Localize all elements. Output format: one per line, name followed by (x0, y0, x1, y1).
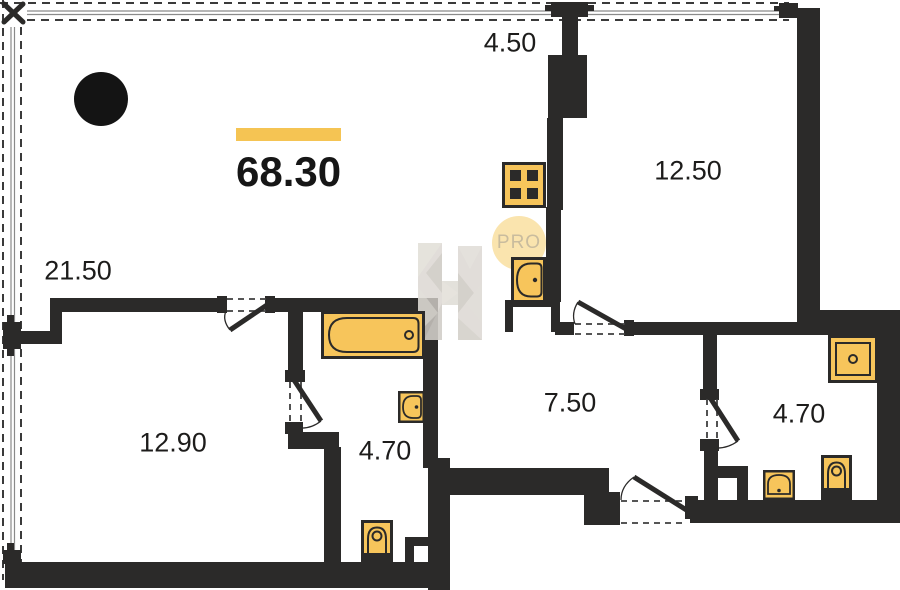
toilet-icon (821, 455, 852, 501)
black-circle-marker (74, 72, 128, 126)
room-label-bathroom-left: 4.70 (359, 436, 412, 467)
floor-plan: PRO 68.30 (0, 0, 900, 590)
bathroom-sink-icon (763, 470, 795, 500)
room-label-hallway: 7.50 (544, 388, 597, 419)
shower-tray-icon (828, 335, 878, 383)
h-logo-watermark (418, 243, 482, 345)
corner-cross-icon (4, 4, 23, 22)
total-area-value: 68.30 (236, 148, 341, 196)
kitchen-sink-icon (511, 257, 546, 303)
room-label-room2: 12.90 (139, 428, 207, 459)
toilet-icon (361, 520, 393, 566)
accent-underline (236, 128, 341, 141)
bathroom-sink-icon (398, 391, 425, 423)
room-label-bedroom: 12.50 (654, 156, 722, 187)
room-label-balcony: 4.50 (484, 28, 537, 59)
bathtub-icon (321, 311, 425, 359)
stove-icon (502, 162, 546, 208)
room-label-bathroom-right: 4.70 (773, 399, 826, 430)
room-label-living: 21.50 (44, 256, 112, 287)
total-area-block: 68.30 (236, 128, 341, 196)
